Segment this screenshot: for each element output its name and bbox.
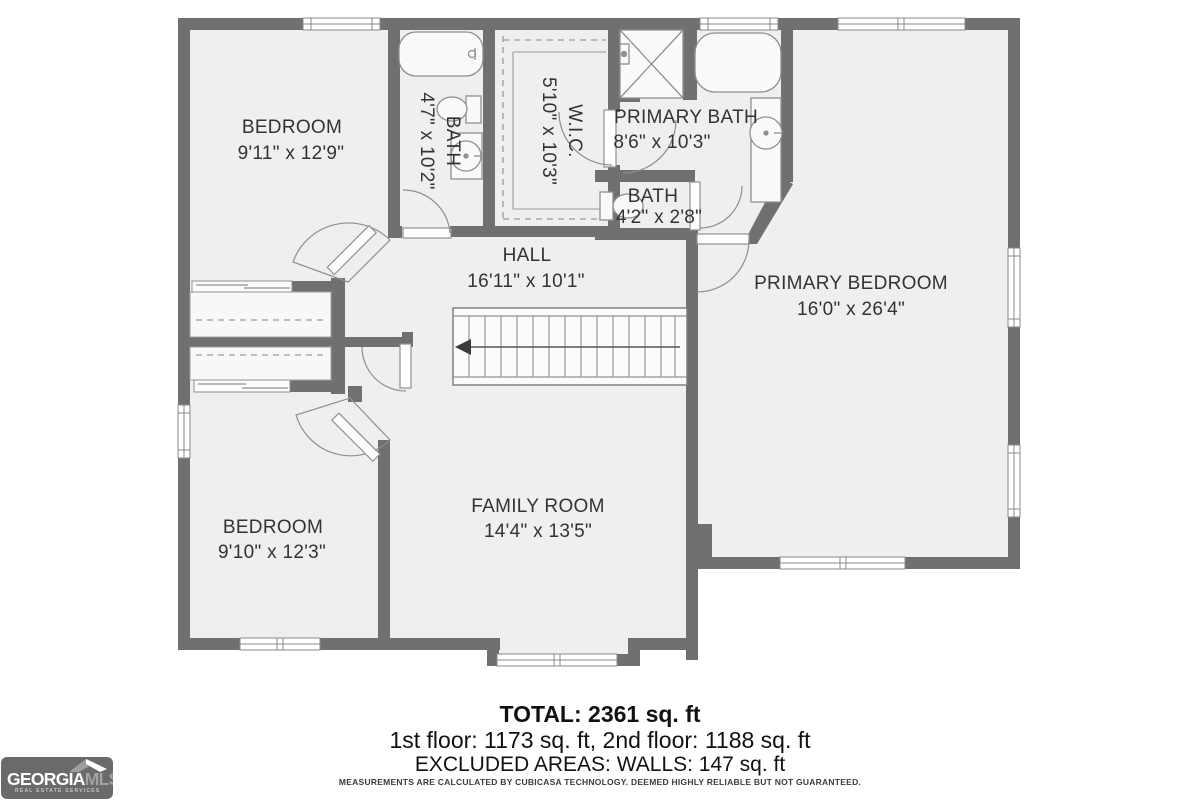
room-dims: 5'10" x 10'3" (538, 77, 559, 185)
window (497, 654, 617, 666)
logo-brand-secondary: MLS (85, 769, 113, 789)
room-dims: 4'7" x 10'2" (416, 92, 437, 189)
room-name: BATH (442, 116, 463, 166)
room-name: FAMILY ROOM (471, 496, 605, 517)
area-summary: TOTAL: 2361 sq. ft 1st floor: 1173 sq. f… (0, 701, 1200, 788)
sliding-door (194, 380, 290, 392)
total-area: TOTAL: 2361 sq. ft (0, 701, 1200, 728)
sliding-door (192, 281, 292, 292)
shower (620, 30, 683, 98)
room-dims: 4'2" x 2'8" (616, 207, 702, 228)
window (700, 18, 778, 30)
room-dims: 16'0" x 26'4" (797, 299, 905, 320)
room-dims: 9'11" x 12'9" (238, 143, 345, 164)
window (1008, 248, 1020, 327)
window (240, 638, 320, 650)
room-name: BATH (628, 186, 678, 207)
floor-plan-page: BEDROOM 9'11" x 12'9" BATH 4'7" x 10'2" … (0, 0, 1200, 800)
stairs (453, 308, 687, 385)
floor-plan-drawing: BEDROOM 9'11" x 12'9" BATH 4'7" x 10'2" … (0, 0, 1200, 705)
floor-areas: 1st floor: 1173 sq. ft, 2nd floor: 1188 … (0, 728, 1200, 753)
bathtub (695, 33, 781, 92)
room-name: HALL (503, 245, 552, 266)
logo-brand-primary: GEORGIA (7, 769, 85, 789)
room-dims: 8'6" x 10'3" (613, 132, 710, 153)
logo-tagline: REAL ESTATE SERVICES (15, 788, 100, 794)
disclaimer: MEASUREMENTS ARE CALCULATED BY CUBICASA … (0, 776, 1200, 788)
window (303, 18, 380, 30)
window (838, 18, 965, 30)
excluded-areas: EXCLUDED AREAS: WALLS: 147 sq. ft (0, 753, 1200, 776)
window (1008, 445, 1020, 517)
georgia-mls-logo: GEORGIAMLS REAL ESTATE SERVICES (1, 757, 113, 799)
room-name: PRIMARY BEDROOM (754, 273, 948, 294)
room-dims: 14'4" x 13'5" (484, 521, 592, 542)
room-name: BEDROOM (223, 517, 323, 538)
window (780, 557, 905, 569)
room-name: PRIMARY BATH (614, 107, 758, 128)
bathtub (399, 32, 483, 76)
room-dims: 9'10" x 12'3" (218, 542, 326, 563)
room-dims: 16'11" x 10'1" (467, 271, 585, 292)
room-name: BEDROOM (242, 117, 342, 138)
window (178, 405, 190, 458)
room-name: W.I.C. (564, 104, 585, 158)
